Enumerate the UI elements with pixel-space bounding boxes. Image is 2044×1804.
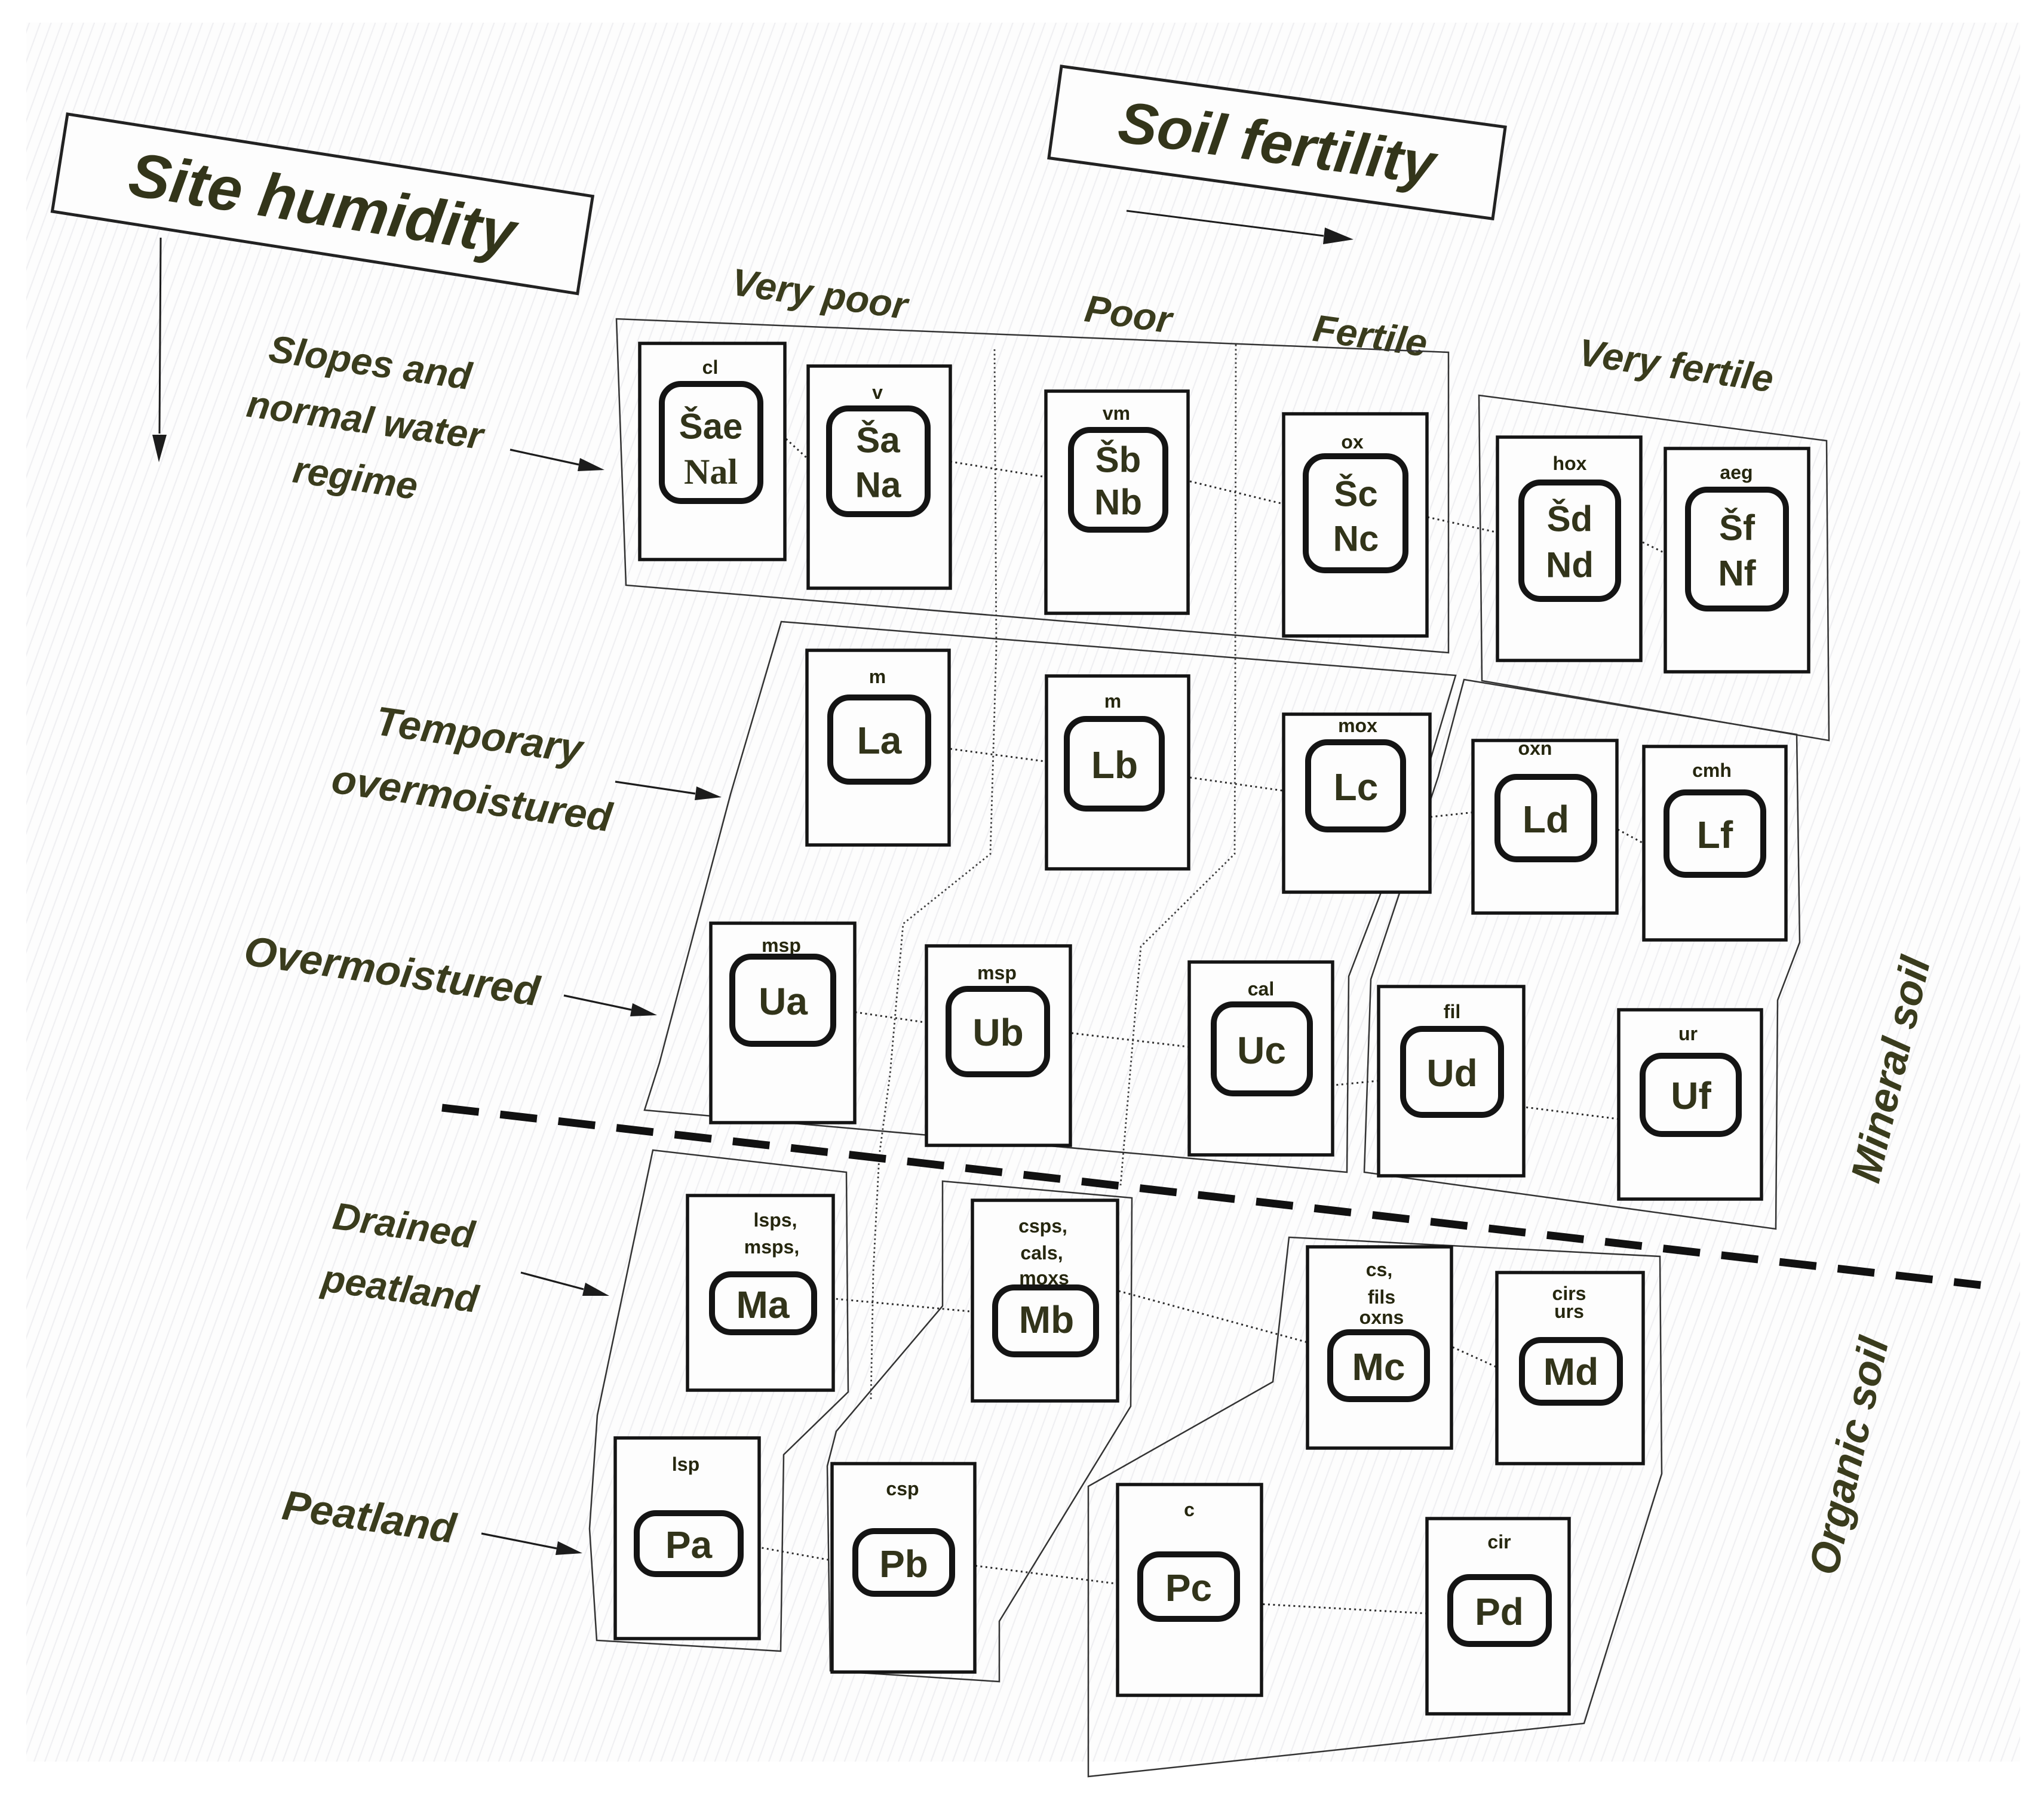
svg-text:msps,: msps,	[744, 1236, 799, 1258]
svg-text:Ma: Ma	[736, 1283, 790, 1326]
svg-text:cir: cir	[1487, 1531, 1511, 1553]
svg-text:mox: mox	[1338, 715, 1377, 736]
svg-text:Ud: Ud	[1426, 1052, 1477, 1095]
svg-text:urs: urs	[1554, 1301, 1584, 1322]
svg-text:lsps,: lsps,	[754, 1209, 797, 1231]
svg-text:fils: fils	[1368, 1286, 1395, 1308]
svg-text:Nal: Nal	[684, 452, 738, 491]
svg-text:Lb: Lb	[1091, 743, 1138, 786]
svg-text:Nb: Nb	[1094, 482, 1142, 523]
svg-text:cals,: cals,	[1020, 1242, 1063, 1264]
svg-text:Nc: Nc	[1333, 519, 1379, 559]
svg-text:m: m	[869, 666, 886, 687]
svg-text:oxn: oxn	[1518, 737, 1552, 759]
svg-text:Lf: Lf	[1697, 813, 1733, 856]
svg-text:cs,: cs,	[1366, 1259, 1392, 1280]
svg-text:Nf: Nf	[1718, 554, 1756, 594]
svg-text:msp: msp	[762, 935, 801, 956]
svg-text:Lc: Lc	[1334, 766, 1379, 809]
svg-text:vm: vm	[1103, 402, 1130, 424]
svg-text:Uc: Uc	[1237, 1029, 1286, 1072]
svg-text:cal: cal	[1248, 978, 1274, 1000]
svg-text:Md: Md	[1543, 1350, 1598, 1393]
svg-text:Mc: Mc	[1352, 1345, 1405, 1388]
svg-text:Šd: Šd	[1547, 499, 1593, 539]
svg-text:Šb: Šb	[1095, 440, 1141, 480]
svg-text:fil: fil	[1444, 1001, 1460, 1022]
svg-text:Pa: Pa	[665, 1523, 713, 1566]
svg-text:msp: msp	[977, 962, 1017, 984]
svg-text:Pd: Pd	[1475, 1590, 1524, 1633]
svg-text:hox: hox	[1553, 453, 1587, 474]
svg-text:csps,: csps,	[1018, 1215, 1067, 1237]
svg-text:aeg: aeg	[1720, 462, 1753, 483]
svg-text:c: c	[1184, 1499, 1195, 1520]
svg-text:lsp: lsp	[672, 1453, 699, 1475]
svg-text:Ub: Ub	[972, 1011, 1023, 1054]
svg-text:La: La	[857, 719, 902, 762]
svg-text:oxns: oxns	[1359, 1307, 1404, 1328]
svg-text:ur: ur	[1678, 1023, 1698, 1044]
svg-text:Ld: Ld	[1523, 798, 1569, 841]
svg-text:Nd: Nd	[1546, 545, 1594, 585]
svg-text:Šf: Šf	[1719, 508, 1755, 548]
svg-text:Ua: Ua	[759, 980, 808, 1023]
svg-text:cmh: cmh	[1692, 760, 1732, 781]
svg-text:Pb: Pb	[879, 1542, 928, 1585]
svg-text:Šae: Šae	[679, 407, 743, 447]
svg-text:cl: cl	[702, 357, 719, 378]
svg-text:csp: csp	[886, 1478, 919, 1499]
svg-text:Na: Na	[855, 465, 901, 505]
svg-text:ox: ox	[1341, 431, 1364, 453]
svg-text:Mb: Mb	[1019, 1298, 1074, 1341]
svg-text:Uf: Uf	[1671, 1074, 1711, 1117]
svg-text:Šc: Šc	[1334, 474, 1377, 514]
svg-text:Pc: Pc	[1165, 1566, 1212, 1609]
svg-text:Ša: Ša	[856, 420, 900, 460]
svg-text:m: m	[1104, 690, 1121, 712]
svg-text:v: v	[872, 382, 883, 403]
